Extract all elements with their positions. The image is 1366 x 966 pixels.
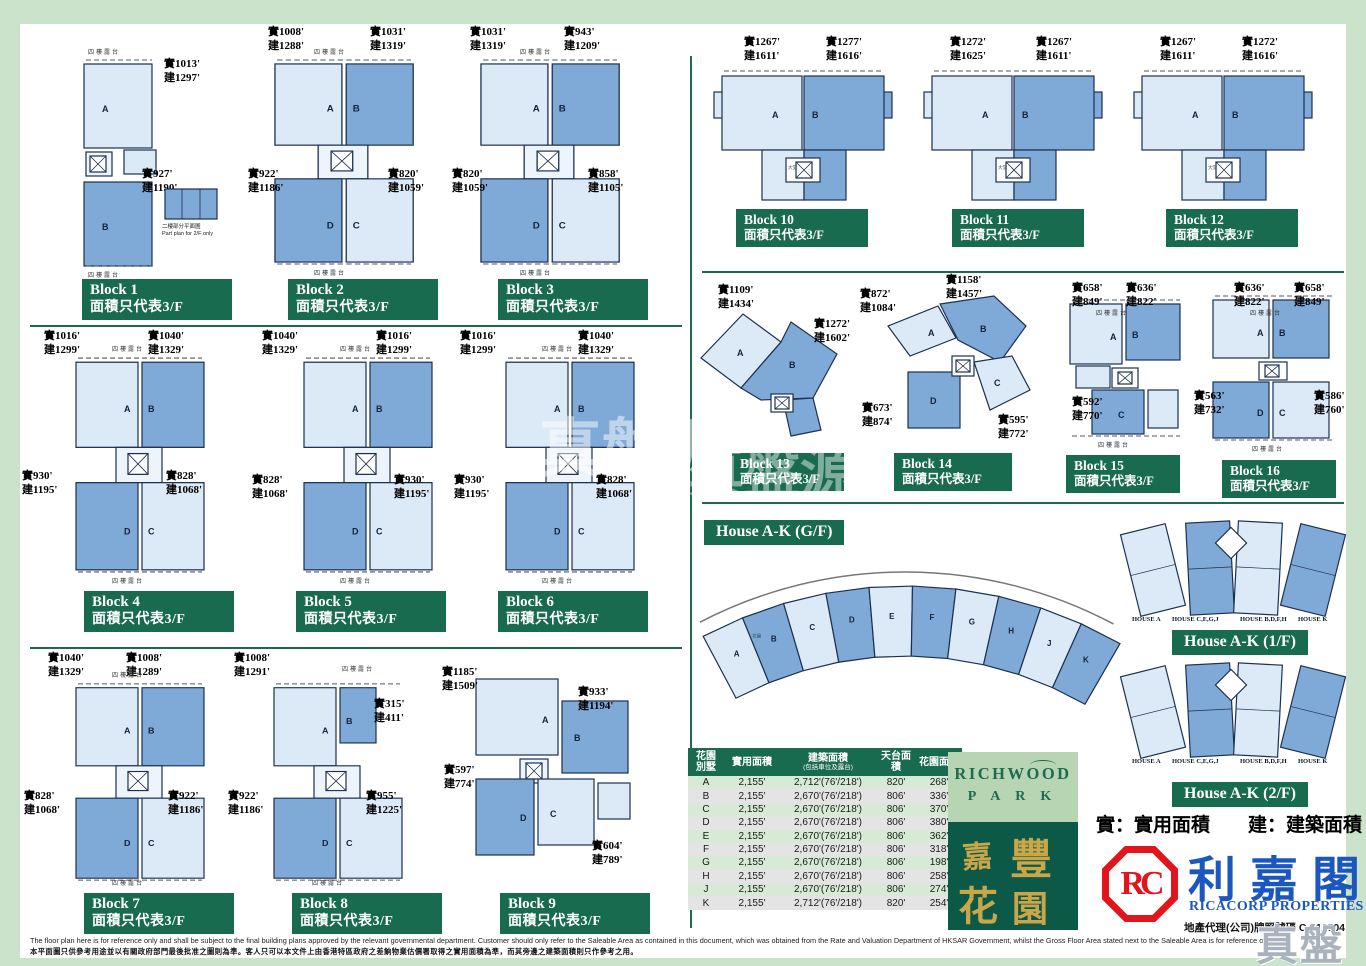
floor-plan-block-3: ABDC	[468, 58, 630, 266]
svg-text:F: F	[930, 613, 935, 622]
block-4-area-label: 實930'建1195'	[22, 470, 57, 498]
svg-text:花園: 花園	[752, 633, 761, 640]
block-14-area-label: 實673'建874'	[862, 402, 893, 430]
cell: 2,155'	[724, 856, 780, 869]
logo-char-2: 豐	[1010, 826, 1052, 887]
block-2-area-label: 實1031'建1319'	[370, 26, 406, 54]
svg-text:B: B	[1022, 110, 1029, 120]
cell: 2,155'	[724, 830, 780, 843]
house-gf-arc-plan: ABCDEFGHJK花園	[700, 546, 1120, 716]
block-12-area-label: 實1267'建1611'	[1160, 36, 1196, 64]
cell: 2,670'(76'/218')	[780, 843, 876, 856]
floor-plan-block-7: ABDC	[64, 682, 214, 882]
svg-text:D: D	[124, 838, 130, 848]
ricacorp-english-name: Ricacorp Properties	[1189, 899, 1364, 915]
block-10-area-label: 實1277'建1616'	[826, 36, 862, 64]
block-6-area-label: 實1016'建1299'	[460, 330, 496, 358]
richwood-park-wordmark: RICHWOOD PARK	[948, 752, 1078, 822]
cell: 806'	[876, 816, 916, 829]
cell: A	[688, 776, 724, 789]
block-15-label: Block 15面積只代表3/F	[1066, 455, 1180, 493]
svg-text:D: D	[930, 396, 937, 406]
floor-plan-block-10: 大堂AB	[712, 68, 894, 206]
svg-text:B: B	[812, 110, 819, 120]
cell: E	[688, 830, 724, 843]
block-8-label: Block 8面積只代表3/F	[292, 893, 442, 934]
svg-text:B: B	[353, 104, 360, 114]
block-7-area-label: 實1040'建1329'	[48, 652, 84, 680]
cell: 806'	[876, 803, 916, 816]
block-14-area-label: 實1158'建1457'	[946, 274, 982, 302]
block-13-label: Block 13面積只代表3/F	[732, 453, 844, 491]
block-9-label: Block 9面積只代表3/F	[500, 893, 650, 934]
svg-text:D: D	[322, 838, 328, 848]
cell: F	[688, 843, 724, 856]
block-16-area-label: 實658'建849'	[1294, 282, 1325, 310]
svg-text:D: D	[1257, 408, 1264, 418]
svg-text:D: D	[533, 221, 540, 231]
block-8-area-label: 實1008'建1291'	[234, 652, 270, 680]
block-5-area-label: 實930'建1195'	[394, 474, 429, 502]
block-7-area-label: 實828'建1068'	[24, 790, 60, 818]
block-15-area-label: 實592'建770'	[1072, 396, 1103, 424]
floor-plan-block-5: ABDC	[292, 356, 442, 574]
svg-text:D: D	[124, 526, 131, 536]
block-6-balcony-top-label: 四樓露台	[542, 344, 574, 353]
table-header-row: 花園別墅 實用面積 建築面積(包括車位及露台) 天台面積 花園面積	[688, 748, 962, 776]
floor-plan-block-12: 大堂AB	[1132, 68, 1314, 206]
park-text: PARK	[948, 784, 1078, 805]
block-8-area-label: 實955'建1225'	[366, 790, 402, 818]
house-2f-group-label: HOUSE C,E,G,J	[1172, 758, 1219, 765]
richwood-park-logo: RICHWOOD PARK 嘉 豐 花 園	[948, 752, 1078, 930]
svg-text:C: C	[148, 526, 155, 536]
svg-text:B: B	[574, 733, 581, 743]
logo-char-1: 嘉	[961, 831, 994, 877]
richwood-text: RICHWOOD	[948, 752, 1078, 784]
block-3-balcony-top-label: 四樓露台	[520, 47, 552, 56]
block-12-label: Block 12面積只代表3/F	[1166, 209, 1298, 247]
cell: 2,155'	[724, 883, 780, 896]
legend-saleable: 實：實用面積	[1096, 810, 1210, 837]
brochure-page: AB實1013'建1297'實927'建1190'四樓露台四樓露台二樓部分平面圖…	[0, 0, 1366, 966]
svg-text:C: C	[353, 221, 360, 231]
house-1f-group-label: HOUSE K	[1298, 616, 1327, 623]
ricacorp-logo-icon: RC	[1102, 846, 1178, 922]
cell: 2,670'(76'/218')	[780, 803, 876, 816]
svg-text:B: B	[980, 324, 987, 334]
block-16-area-label: 實586'建760'	[1314, 390, 1345, 418]
house-gf-label: House A-K (G/F)	[704, 520, 844, 545]
svg-text:大堂: 大堂	[998, 164, 1007, 171]
block-15-area-label: 實658'建849'	[1072, 282, 1103, 310]
block-13-area-label: 實1109'建1434'	[718, 284, 754, 312]
svg-text:D: D	[554, 526, 561, 536]
svg-text:B: B	[578, 404, 585, 414]
cell: 2,670'(76'/218')	[780, 789, 876, 802]
agency-license-number: 地產代理(公司)牌照號碼 C-012504	[1184, 920, 1345, 935]
svg-text:C: C	[376, 526, 383, 536]
block-2-label: Block 2面積只代表3/F	[288, 279, 438, 320]
floor-plan-block-1: AB	[74, 58, 162, 268]
block-2-balcony-bottom-label: 四樓露台	[314, 268, 346, 277]
svg-text:A: A	[533, 104, 540, 114]
cell: 806'	[876, 830, 916, 843]
svg-text:大堂: 大堂	[1208, 164, 1217, 171]
house-1f-group-label: HOUSE B,D,F,H	[1240, 616, 1287, 623]
svg-text:A: A	[982, 110, 989, 120]
block-2-area-label: 實1008'建1288'	[268, 26, 304, 54]
table-row-house-D: D2,155'2,670'(76'/218')806'380'	[688, 816, 962, 829]
block-7-balcony-top-label: 四樓露台	[112, 670, 144, 679]
cell: D	[688, 816, 724, 829]
table-row-house-B: B2,155'2,670'(76'/218')806'336'	[688, 789, 962, 802]
block-4-balcony-top-label: 四樓露台	[112, 344, 144, 353]
svg-text:D: D	[352, 526, 359, 536]
table-row-house-E: E2,155'2,670'(76'/218')806'362'	[688, 830, 962, 843]
col-saleable-area: 實用面積	[724, 748, 780, 776]
block-1-balcony-top-label: 四樓露台	[88, 47, 120, 56]
block-16-balcony-bottom-label: 四樓露台	[1252, 444, 1284, 453]
col-roof-area: 天台面積	[876, 748, 916, 776]
svg-text:D: D	[520, 813, 527, 823]
table-row-house-H: H2,155'2,670'(76'/218')806'258'	[688, 870, 962, 883]
block-2-balcony-top-label: 四樓露台	[314, 47, 346, 56]
block-5-label: Block 5面積只代表3/F	[296, 591, 446, 632]
svg-text:A: A	[327, 104, 334, 114]
block-15-balcony-bottom-label: 四樓露台	[1098, 440, 1130, 449]
svg-text:A: A	[124, 726, 131, 736]
block-6-area-label: 實828'建1068'	[596, 474, 632, 502]
svg-text:B: B	[1232, 110, 1239, 120]
block-7-balcony-bottom-label: 四樓露台	[112, 878, 144, 887]
block-9-area-label: 實1185'建1509'	[442, 666, 478, 694]
block-9-area-label: 實597'建774'	[444, 764, 475, 792]
block-11-label: Block 11面積只代表3/F	[952, 209, 1084, 247]
logo-char-4: 園	[1012, 880, 1048, 932]
area-legend: 實：實用面積 建：建築面積	[1096, 810, 1362, 837]
block-16-label: Block 16面積只代表3/F	[1222, 460, 1336, 498]
svg-text:大堂: 大堂	[788, 164, 797, 171]
svg-text:A: A	[554, 404, 561, 414]
svg-text:A: A	[352, 404, 359, 414]
block-7-area-label: 實922'建1186'	[168, 790, 203, 818]
garden-house-area-table: 花園別墅 實用面積 建築面積(包括車位及露台) 天台面積 花園面積A2,155'…	[688, 748, 962, 910]
svg-text:C: C	[1118, 410, 1125, 420]
block-12-area-label: 實1272'建1616'	[1242, 36, 1278, 64]
svg-text:A: A	[734, 649, 740, 658]
block-5-area-label: 實828'建1068'	[252, 474, 288, 502]
house-2f-group-label: HOUSE K	[1298, 758, 1327, 765]
house-1f-group-label: HOUSE A	[1132, 616, 1161, 623]
cell: 820'	[876, 896, 916, 909]
svg-text:C: C	[809, 623, 815, 632]
block-8-area-label: 實922'建1186'	[228, 790, 263, 818]
block-13-area-label: 實1272'建1602'	[814, 318, 850, 346]
svg-text:A: A	[737, 348, 744, 358]
cell: 2,670'(76'/218')	[780, 883, 876, 896]
block-1-label: Block 1面積只代表3/F	[82, 279, 232, 320]
floor-plan-block-6: ABDC	[494, 356, 644, 574]
disclaimer-english: The floor plan here is for reference onl…	[30, 936, 1274, 945]
block-15-area-label: 實636'建822'	[1126, 282, 1157, 310]
logo-char-3: 花	[958, 874, 998, 932]
cell: 2,712'(76'/218')	[780, 776, 876, 789]
house-2f-group-label: HOUSE A	[1132, 758, 1161, 765]
block-3-area-label: 實1031'建1319'	[470, 26, 506, 54]
block-14-label: Block 14面積只代表3/F	[894, 453, 1012, 491]
cell: 806'	[876, 883, 916, 896]
cell: 2,155'	[724, 843, 780, 856]
block-6-label: Block 6面積只代表3/F	[498, 591, 648, 632]
house-1f-label: House A-K (1/F)	[1172, 630, 1308, 655]
svg-text:C: C	[346, 838, 353, 848]
cell: 2,670'(76'/218')	[780, 816, 876, 829]
svg-text:C: C	[1279, 408, 1286, 418]
cell: 806'	[876, 843, 916, 856]
block-4-area-label: 實1040'建1329'	[148, 330, 184, 358]
svg-text:B: B	[376, 404, 383, 414]
logo-arc-accent	[1030, 760, 1056, 770]
svg-text:D: D	[327, 221, 334, 231]
block-11-area-label: 實1267'建1611'	[1036, 36, 1072, 64]
svg-text:C: C	[550, 809, 557, 819]
block-10-label: Block 10面積只代表3/F	[736, 209, 868, 247]
cell: 806'	[876, 856, 916, 869]
svg-text:B: B	[1279, 328, 1286, 338]
svg-text:B: B	[102, 222, 109, 232]
block-3-area-label: 實820'建1059'	[452, 168, 488, 196]
block-3-label: Block 3面積只代表3/F	[498, 279, 648, 320]
svg-text:B: B	[346, 716, 352, 726]
house-1f-plan	[1128, 518, 1340, 618]
cell: K	[688, 896, 724, 909]
svg-text:C: C	[559, 221, 566, 231]
block-9-area-label: 實604'建789'	[592, 840, 623, 868]
block-8-balcony-top-label: 四樓露台	[342, 664, 374, 673]
cell: 2,155'	[724, 896, 780, 909]
block-3-balcony-bottom-label: 四樓露台	[520, 268, 552, 277]
ricacorp-monogram: RC	[1102, 846, 1178, 922]
block-16-balcony-top-label: 四樓露台	[1250, 308, 1282, 317]
cell: 2,670'(76'/218')	[780, 856, 876, 869]
cell: 2,670'(76'/218')	[780, 830, 876, 843]
svg-text:K: K	[1083, 656, 1089, 665]
svg-text:B: B	[1132, 330, 1139, 340]
floor-plan-block-4: ABDC	[64, 356, 214, 574]
table-row-house-A: A2,155'2,712'(76'/218')820'268'	[688, 776, 962, 789]
table-row-house-J: J2,155'2,670'(76'/218')806'274'	[688, 883, 962, 896]
cell: B	[688, 789, 724, 802]
floor-plan-block-2: ABDC	[262, 58, 424, 266]
block-15-balcony-top-label: 四樓露台	[1096, 308, 1128, 317]
block-5-balcony-top-label: 四樓露台	[340, 344, 372, 353]
svg-text:B: B	[148, 404, 155, 414]
svg-text:C: C	[148, 838, 155, 848]
house-2f-group-label: HOUSE B,D,F,H	[1240, 758, 1287, 765]
svg-text:E: E	[889, 612, 895, 621]
block-11-area-label: 實1272'建1625'	[950, 36, 986, 64]
table-row-house-K: K2,155'2,712'(76'/218')820'254'	[688, 896, 962, 909]
disclaimer-chinese: 本平面圖只供參考用途並以有關政府部門最後批准之圖則為準。客人只可以本文件上由香港…	[30, 947, 638, 957]
block-14-area-label: 實595'建772'	[998, 414, 1029, 442]
block-6-area-label: 實930'建1195'	[454, 474, 489, 502]
block-6-area-label: 實1040'建1329'	[578, 330, 614, 358]
cell: H	[688, 870, 724, 883]
block-14-area-label: 實872'建1084'	[860, 288, 896, 316]
svg-text:B: B	[771, 634, 777, 643]
cell: 2,155'	[724, 870, 780, 883]
cell: 2,670'(76'/218')	[780, 870, 876, 883]
cell: 2,155'	[724, 803, 780, 816]
floor-plan-block-11: 大堂AB	[922, 68, 1104, 206]
block-4-label: Block 4面積只代表3/F	[84, 591, 234, 632]
block-5-area-label: 實1040'建1329'	[262, 330, 298, 358]
svg-text:A: A	[928, 328, 935, 338]
block-2-area-label: 實820'建1059'	[388, 168, 424, 196]
block-2-area-label: 實922'建1186'	[248, 168, 283, 196]
block-1-part-plan	[164, 188, 218, 222]
block-4-area-label: 實1016'建1299'	[44, 330, 80, 358]
svg-text:A: A	[1257, 328, 1264, 338]
svg-text:A: A	[322, 726, 329, 736]
richwood-park-chinese-name: 嘉 豐 花 園	[948, 822, 1078, 930]
block-16-area-label: 實563'建732'	[1194, 390, 1225, 418]
block-8-area-label: 實315'建411'	[374, 698, 405, 726]
cell: 806'	[876, 870, 916, 883]
table-row-house-F: F2,155'2,670'(76'/218')806'318'	[688, 843, 962, 856]
svg-text:H: H	[1008, 626, 1014, 635]
cell: J	[688, 883, 724, 896]
block-1-area-label: 實1013'建1297'	[164, 58, 200, 86]
svg-text:J: J	[1047, 639, 1051, 648]
block-1-part-plan-note: 二樓部分平面圖Part plan for 2/F only	[162, 224, 240, 239]
block-3-area-label: 實858'建1105'	[588, 168, 623, 196]
block-8-balcony-bottom-label: 四樓露台	[312, 878, 344, 887]
col-gross-area: 建築面積(包括車位及露台)	[780, 748, 876, 776]
cell: 806'	[876, 789, 916, 802]
svg-text:B: B	[559, 104, 566, 114]
svg-text:A: A	[1192, 110, 1199, 120]
legend-gross: 建：建築面積	[1248, 810, 1362, 837]
svg-text:A: A	[772, 110, 779, 120]
svg-text:A: A	[124, 404, 131, 414]
cell: 2,155'	[724, 816, 780, 829]
svg-text:B: B	[789, 360, 796, 370]
svg-text:C: C	[994, 378, 1001, 388]
cell: 2,155'	[724, 789, 780, 802]
cell: 820'	[876, 776, 916, 789]
block-1-balcony-bottom-label: 四樓露台	[88, 270, 120, 279]
house-2f-plan	[1128, 660, 1340, 760]
block-4-balcony-bottom-label: 四樓露台	[112, 576, 144, 585]
svg-text:G: G	[969, 618, 975, 627]
cell: 2,712'(76'/218')	[780, 896, 876, 909]
cell: G	[688, 856, 724, 869]
house-1f-group-label: HOUSE C,E,G,J	[1172, 616, 1219, 623]
block-7-label: Block 7面積只代表3/F	[84, 893, 234, 934]
cell: C	[688, 803, 724, 816]
block-5-balcony-bottom-label: 四樓露台	[340, 576, 372, 585]
svg-text:A: A	[102, 104, 109, 114]
block-4-area-label: 實828'建1068'	[166, 470, 202, 498]
svg-text:D: D	[849, 616, 855, 625]
block-9-area-label: 實933'建1194'	[578, 686, 613, 714]
cell: 2,155'	[724, 776, 780, 789]
block-6-balcony-bottom-label: 四樓露台	[542, 576, 574, 585]
svg-text:A: A	[542, 715, 549, 725]
svg-text:A: A	[1110, 332, 1117, 342]
block-16-area-label: 實636'建822'	[1234, 282, 1265, 310]
block-3-area-label: 實943'建1209'	[564, 26, 600, 54]
block-5-area-label: 實1016'建1299'	[376, 330, 412, 358]
col-garden-house: 花園別墅	[688, 748, 724, 776]
svg-text:B: B	[148, 726, 154, 736]
svg-text:C: C	[578, 526, 585, 536]
table-row-house-G: G2,155'2,670'(76'/218')806'198'	[688, 856, 962, 869]
house-2f-label: House A-K (2/F)	[1172, 782, 1308, 807]
block-10-area-label: 實1267'建1611'	[744, 36, 780, 64]
table-row-house-C: C2,155'2,670'(76'/218')806'370'	[688, 803, 962, 816]
